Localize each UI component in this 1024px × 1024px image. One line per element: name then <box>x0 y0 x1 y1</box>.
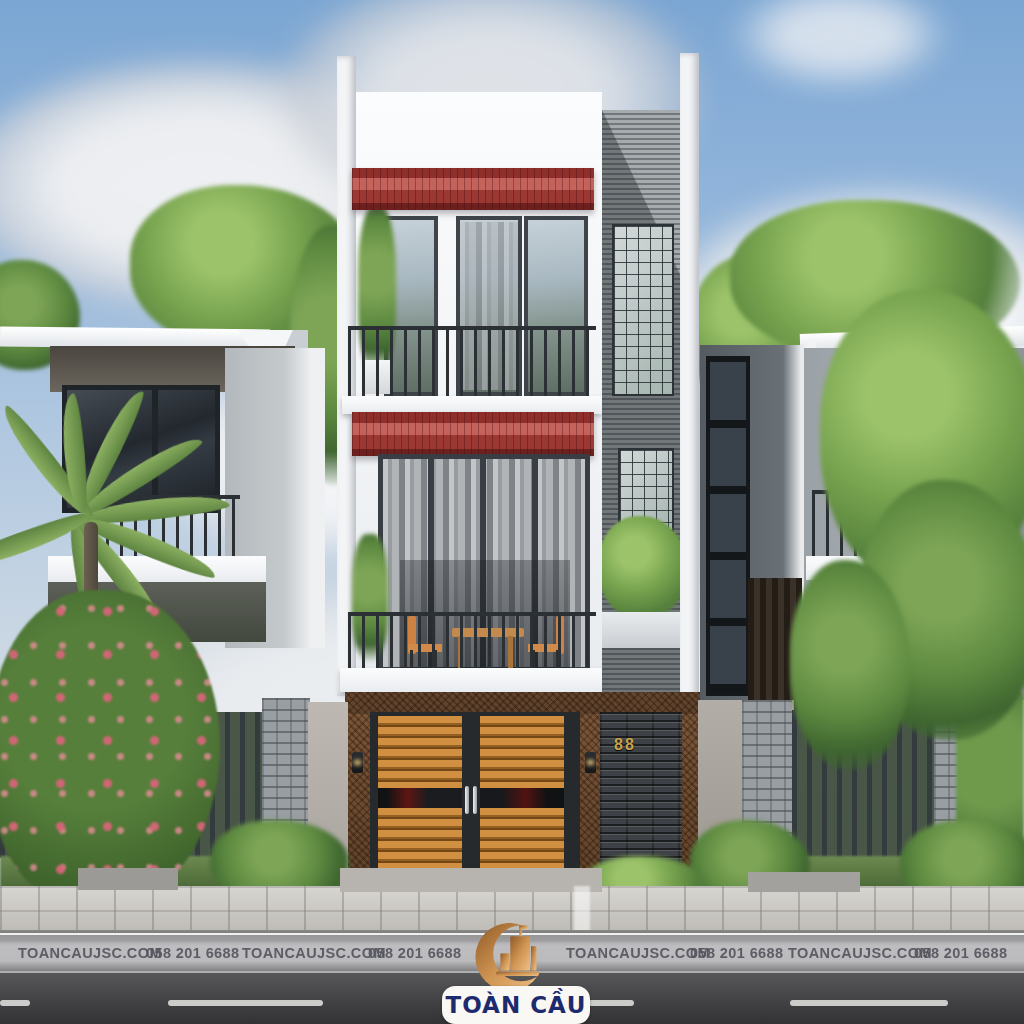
third-floor-balcony-railing <box>348 326 596 398</box>
watermark-phone: 058 201 6688 <box>368 945 462 961</box>
brand-name-plate: TOÀN CẦU <box>442 986 590 1024</box>
watermark-website: TOANCAUJSC.COM <box>18 945 162 961</box>
lane-marking <box>0 1000 30 1006</box>
garage-door-left-lower <box>378 808 462 868</box>
planter-box <box>602 612 682 648</box>
garage-door-right-glass-band <box>480 788 564 808</box>
watermark-phone: 058 201 6688 <box>690 945 784 961</box>
tree <box>790 560 910 770</box>
wall-lamp-left <box>352 752 363 773</box>
watermark-phone: 058 201 6688 <box>914 945 1008 961</box>
red-awning-lower <box>352 412 594 456</box>
watermark-website: TOANCAUJSC.COM <box>242 945 386 961</box>
watermark-website: TOANCAUJSC.COM <box>788 945 932 961</box>
driveway-pad <box>340 868 602 892</box>
wall-lamp-right <box>585 752 596 773</box>
right-house-window-panes <box>710 362 746 692</box>
brick-lintel-shadow <box>345 692 700 714</box>
garage-door-left-glass-band <box>378 788 462 808</box>
garage-door-right-upper <box>480 716 564 788</box>
second-floor-slab <box>340 668 602 692</box>
garage-door-right-lower <box>480 808 564 868</box>
red-awning-upper <box>352 168 594 210</box>
lane-marking <box>168 1000 323 1006</box>
watermark-website: TOANCAUJSC.COM <box>566 945 710 961</box>
lane-marking <box>790 1000 948 1006</box>
main-house-right-pillar <box>680 53 699 696</box>
second-floor-balcony-railing <box>348 612 596 670</box>
house-number: 88 <box>614 736 636 754</box>
glass-block-window-upper <box>612 224 674 396</box>
garage-door-handle-right <box>473 786 477 814</box>
driveway-pad <box>748 872 860 892</box>
driveway-pad <box>78 868 178 890</box>
architectural-rendering: 88 TOANCAUJSC.COM <box>0 0 1024 1024</box>
planter-plants <box>598 516 688 620</box>
sidewalk-marking <box>574 886 590 936</box>
garage-door-left-upper <box>378 716 462 788</box>
garage-door-handle-left <box>465 786 469 814</box>
lane-marking <box>588 1000 634 1006</box>
watermark-phone: 058 201 6688 <box>146 945 240 961</box>
